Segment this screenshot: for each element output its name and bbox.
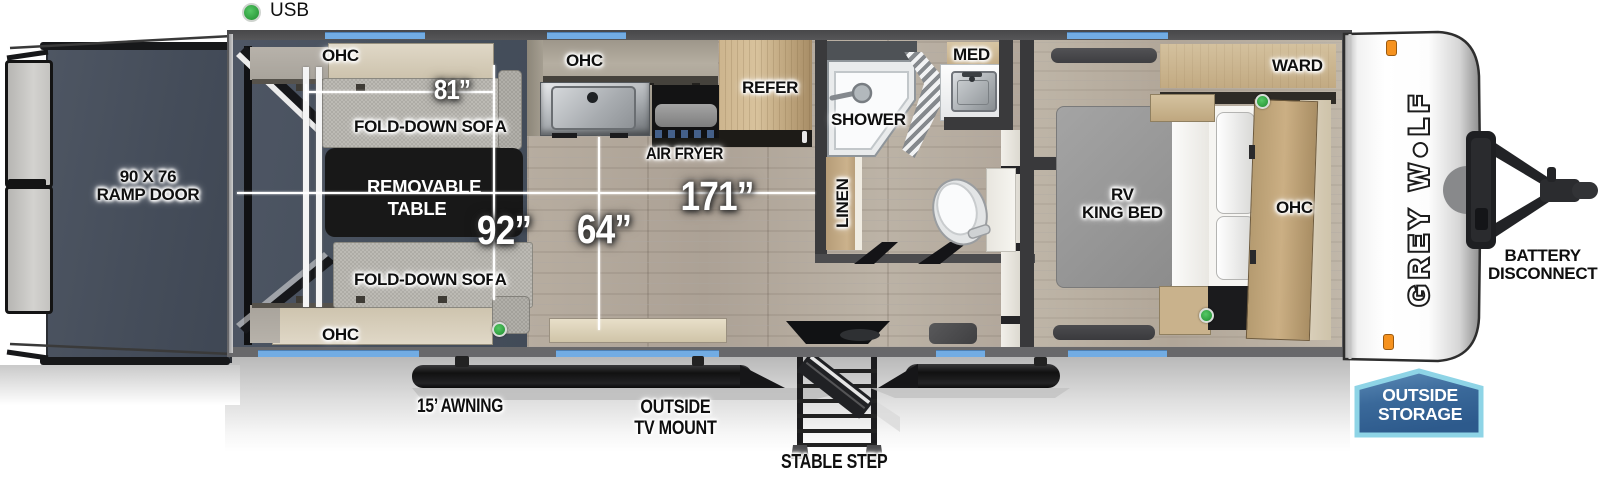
svg-text:GREY W●LF: GREY W●LF bbox=[1404, 89, 1434, 306]
